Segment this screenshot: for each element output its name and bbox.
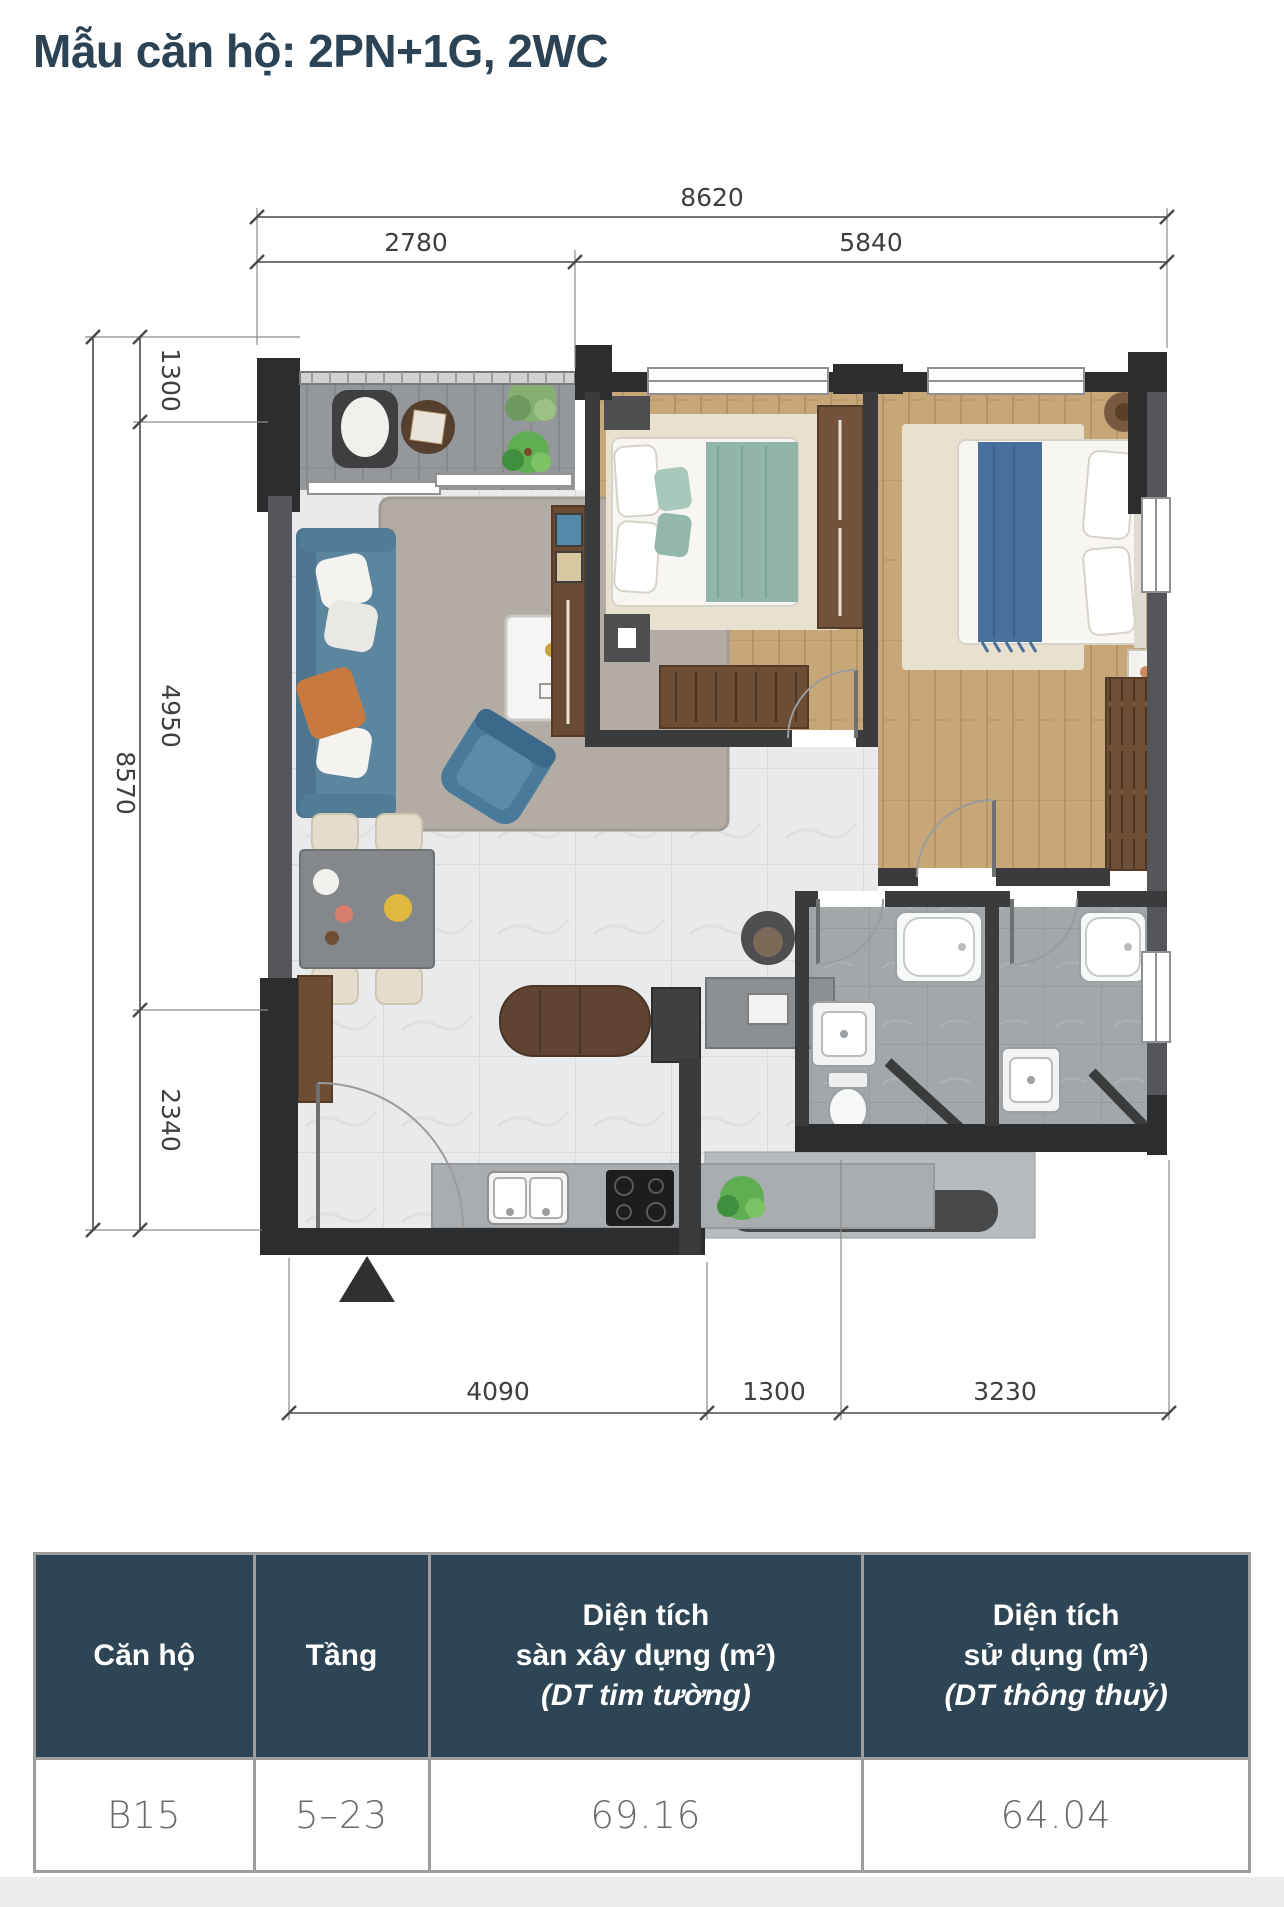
window (928, 368, 1084, 394)
blue-throw (978, 442, 1042, 642)
dining-table (300, 850, 434, 968)
vanity-sink (812, 1002, 876, 1066)
window (1142, 952, 1170, 1042)
kitchen-island (500, 986, 700, 1062)
bed-double (958, 436, 1146, 652)
dim-top-total: 8620 (680, 183, 744, 212)
header-tang: Tầng (254, 1554, 429, 1759)
teal-blanket (706, 442, 798, 602)
cell-dt-xay-dung: 69.16 (429, 1759, 863, 1872)
corridor-floor (795, 747, 878, 891)
cell-tang: 5–23 (254, 1759, 429, 1872)
dim-bottom-seg1: 4090 (466, 1377, 530, 1406)
cell-can-ho: B15 (35, 1759, 255, 1872)
entrance-marker-icon (339, 1256, 395, 1302)
dim-left-seg2: 4950 (156, 684, 185, 748)
nightstand (604, 396, 650, 430)
window (1142, 498, 1170, 592)
window (648, 368, 828, 394)
double-sink (488, 1172, 568, 1224)
laptop-icon (748, 994, 788, 1024)
header-can-ho: Căn hộ (35, 1554, 255, 1759)
dresser (660, 666, 808, 728)
page: Mẫu căn hộ: 2PN+1G, 2WC (0, 0, 1284, 1907)
cooktop (606, 1170, 674, 1226)
dim-left-seg3: 2340 (156, 1088, 185, 1152)
dim-bottom-seg2: 1300 (742, 1377, 806, 1406)
header-dien-tich-su-dung: Diện tích sử dụng (m²) (DT thông thuỷ) (863, 1554, 1250, 1759)
floor-plan-image: 8620 2780 5840 8570 1300 4950 2340 4090 … (0, 0, 1284, 1460)
picture-frame-icon (556, 552, 582, 582)
dim-bottom-seg3: 3230 (973, 1377, 1037, 1406)
header-dien-tich-xay-dung: Diện tích sàn xây dựng (m²) (DT tim tườn… (429, 1554, 863, 1759)
vanity-sink (1002, 1048, 1060, 1112)
cell-dt-su-dung: 64.04 (863, 1759, 1250, 1872)
unit-info-table: Căn hộ Tầng Diện tích sàn xây dựng (m²) … (33, 1552, 1251, 1873)
toilet (828, 1072, 868, 1132)
table-row: B15 5–23 69.16 64.04 (35, 1759, 1250, 1872)
fridge (652, 988, 700, 1062)
bed-double (612, 438, 798, 606)
tv-console (552, 506, 585, 736)
dim-left-seg1: 1300 (156, 348, 185, 412)
picture-frame-icon (556, 514, 582, 546)
sofa (294, 528, 396, 818)
table-header-row: Căn hộ Tầng Diện tích sàn xây dựng (m²) … (35, 1554, 1250, 1759)
footer-strip (0, 1877, 1284, 1907)
flowers-icon (384, 894, 412, 922)
dim-left-total: 8570 (111, 751, 140, 815)
wardrobe (818, 406, 863, 628)
dim-top-seg1: 2780 (384, 228, 448, 257)
dim-top-seg2: 5840 (839, 228, 903, 257)
